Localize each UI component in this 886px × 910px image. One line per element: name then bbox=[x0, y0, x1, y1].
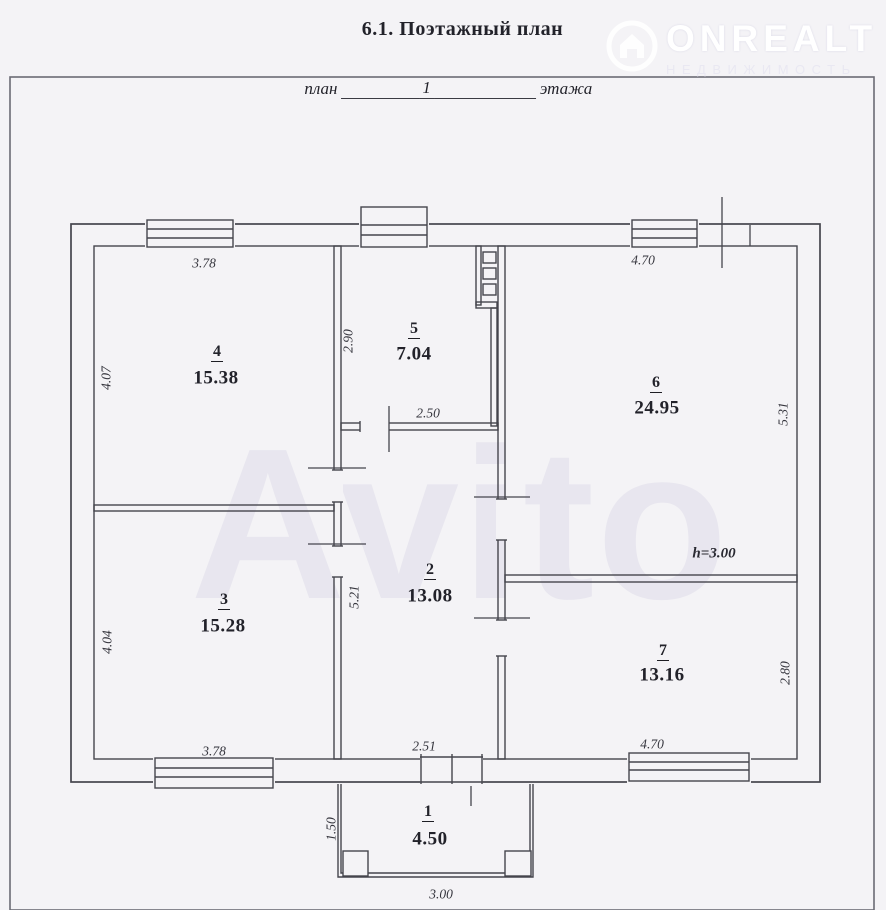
room-4-number: 4 bbox=[211, 344, 223, 362]
page-title: 6.1. Поэтажный план bbox=[362, 18, 563, 41]
plan-floor-line: план 1 этажа bbox=[300, 78, 596, 99]
room-5-dim-left: 2.90 bbox=[341, 329, 355, 353]
room-4-area: 15.38 bbox=[193, 369, 238, 388]
room-4-dim-left: 4.07 bbox=[99, 366, 113, 390]
plan-line-prefix: план bbox=[300, 79, 341, 99]
room-1-number: 1 bbox=[422, 804, 434, 822]
room-6-dim-right: 5.31 bbox=[776, 402, 790, 426]
room-2-number: 2 bbox=[424, 562, 436, 580]
scanned-floor-plan-page: Avito bbox=[0, 0, 886, 910]
exterior-walls bbox=[71, 224, 820, 782]
room-3-number: 3 bbox=[218, 592, 230, 610]
room-6-area: 24.95 bbox=[634, 399, 679, 418]
windows bbox=[145, 205, 751, 790]
room-5-number: 5 bbox=[408, 321, 420, 339]
room-6-dim-top: 4.70 bbox=[631, 253, 655, 267]
room-7-area: 13.16 bbox=[639, 666, 684, 685]
room-5-area: 7.04 bbox=[396, 345, 431, 364]
room-2-dim-left: 5.21 bbox=[347, 585, 361, 609]
room-7-number: 7 bbox=[657, 643, 669, 661]
blank-line bbox=[341, 81, 419, 99]
room-7-dim-bottom: 4.70 bbox=[640, 737, 664, 751]
page-border bbox=[10, 77, 874, 910]
room-3-dim-left: 4.04 bbox=[100, 630, 114, 654]
room-3-dim-bottom: 3.78 bbox=[202, 744, 226, 758]
section-ticks bbox=[308, 197, 750, 806]
ceiling-height-note: h=3.00 bbox=[692, 547, 735, 562]
room-4-dim-top: 3.78 bbox=[192, 256, 216, 270]
plan-line-suffix: этажа bbox=[536, 79, 596, 99]
room-6-number: 6 bbox=[650, 375, 662, 393]
room-1-area: 4.50 bbox=[412, 830, 447, 849]
room-1-dim-bottom: 3.00 bbox=[429, 887, 453, 901]
room-7-dim-right: 2.80 bbox=[778, 661, 792, 685]
floorplan-drawing bbox=[0, 0, 886, 910]
room-2-area: 13.08 bbox=[407, 587, 452, 606]
room-2-dim-bottom: 2.51 bbox=[412, 739, 436, 753]
interior-walls bbox=[94, 246, 797, 759]
room-3-area: 15.28 bbox=[200, 617, 245, 636]
blank-line bbox=[434, 81, 536, 99]
flue-squares bbox=[483, 252, 496, 295]
floor-number: 1 bbox=[419, 78, 434, 99]
room-5-dim-bottom: 2.50 bbox=[416, 406, 440, 420]
room-1-dim-left: 1.50 bbox=[324, 817, 338, 841]
